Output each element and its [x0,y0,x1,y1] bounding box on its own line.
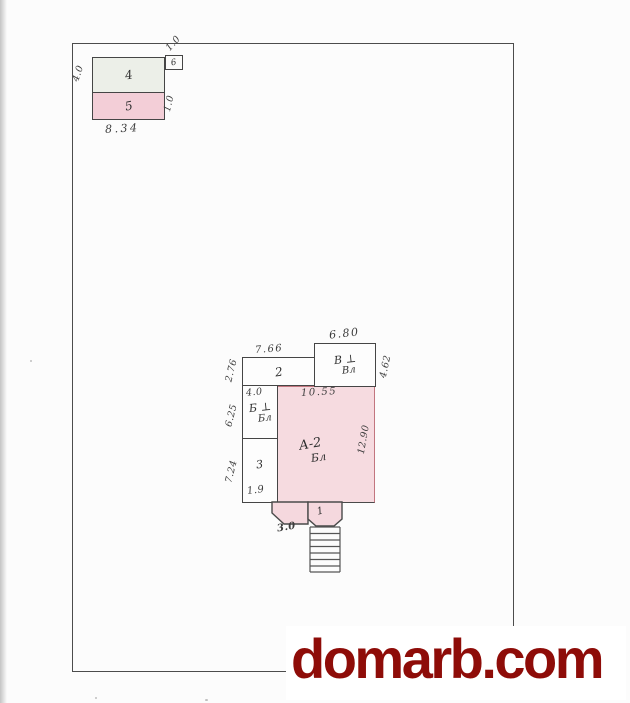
room-label: Бл [310,450,327,465]
stairs-hatch [310,527,340,572]
outbuilding-room-5: 5 [92,92,165,120]
room-label: 2 [274,364,284,379]
outbuilding-annex: 6 [165,55,183,70]
room-label: Бл [257,412,272,424]
dimension-label: 8.34 [105,121,140,136]
main-room-V: В ⊥ Вл [314,343,376,387]
room-label: 4 [124,67,134,82]
dimension-label: 10.55 [301,386,338,399]
scan-speck [205,699,208,701]
dimension-label: 7.66 [255,343,284,356]
porch-shape [308,502,342,526]
room-label: 3 [255,458,264,472]
main-room-2: 2 [242,357,315,386]
room-label: 5 [124,98,134,113]
entrance-porch-and-stairs [265,496,350,578]
dimension-label: 1.9 [246,484,265,497]
scan-speck [30,360,32,362]
scan-speck [95,697,97,699]
dimension-label: 4.0 [246,386,264,398]
scanned-plan-page: 4 5 6 4.0 8.34 1.0 1.0 2 В ⊥ Вл Б ⊥ Бл 3… [0,0,630,703]
watermark-text: domarb.com [286,626,626,700]
room-label: Вл [342,365,357,377]
outbuilding-room-4: 4 [92,57,165,93]
scan-edge-smudge [0,0,7,703]
room-label: 6 [170,57,177,68]
